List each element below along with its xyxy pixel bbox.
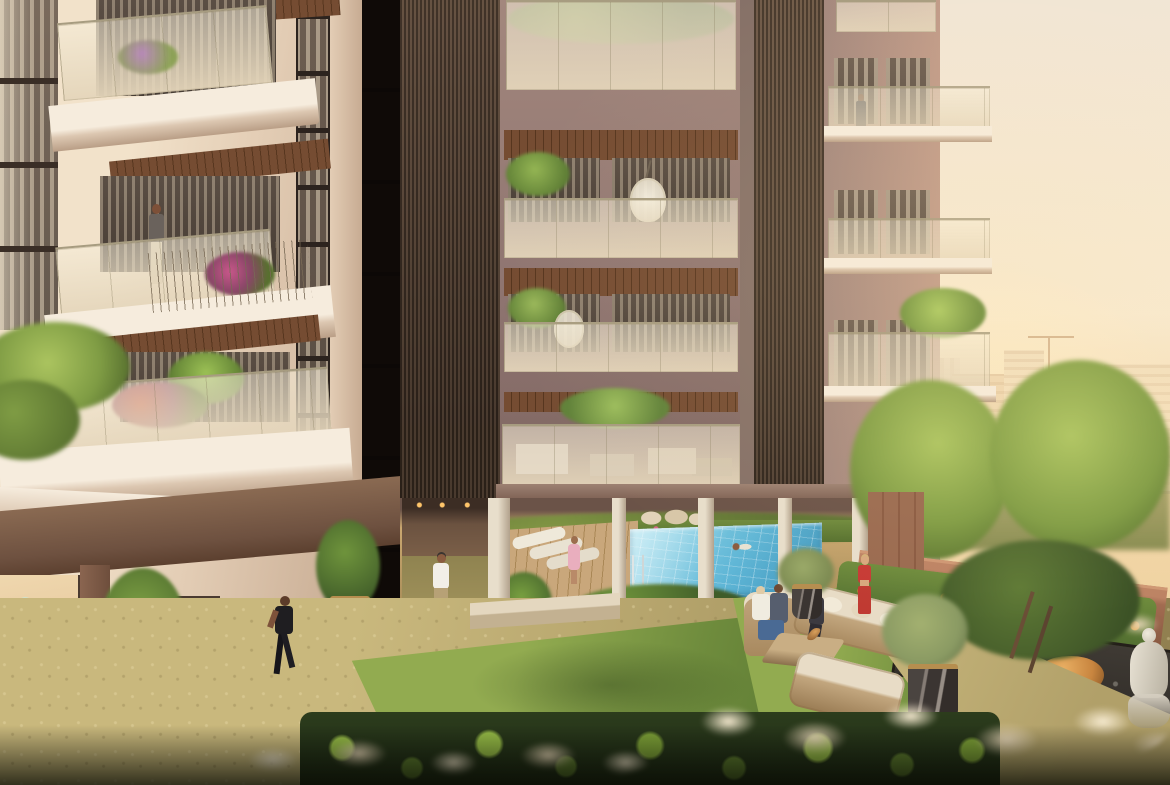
garden-tree-2	[990, 360, 1170, 550]
tower-louver-left-shade	[400, 0, 500, 505]
tower-mid-pier	[740, 0, 754, 500]
buddha-head	[1142, 628, 1156, 643]
woman-pink-head	[571, 536, 578, 544]
jogger-black-leg2	[281, 632, 296, 668]
couple-body-1	[752, 594, 770, 620]
architectural-rendering	[0, 0, 1170, 785]
woman-pink-robe	[566, 536, 582, 586]
olive-tree	[882, 594, 968, 668]
woman-red-outfit	[852, 556, 878, 620]
amenity-glass-band	[502, 424, 740, 486]
rightbay-palm	[900, 288, 986, 338]
floorA-glass-rail	[504, 198, 738, 258]
pool-ladder-icon	[632, 555, 644, 585]
corridor-ceiling-lights	[408, 502, 484, 508]
woman-pink-legs	[571, 570, 577, 584]
bottom-vignette	[0, 725, 1170, 785]
amenity-interior-furniture	[516, 444, 568, 474]
tower-louver-right-shade	[754, 0, 824, 492]
floorB-glass-rail	[504, 322, 738, 372]
balcony1-plant	[118, 40, 178, 74]
floorA-palms	[506, 152, 570, 196]
jogger-white-shirt	[433, 563, 449, 589]
woman-red-pants	[858, 586, 871, 614]
woman-red-head	[861, 556, 869, 565]
woman-pink-body	[568, 544, 580, 570]
left-corner-glazing-frames	[0, 0, 58, 330]
jogger-white-head	[437, 554, 446, 563]
rightbay-top-glass	[836, 0, 936, 32]
tower-central-bay	[500, 0, 740, 500]
couple-head-2	[774, 584, 783, 593]
jogger-black-head	[280, 596, 290, 606]
poolside-wicker-set	[638, 506, 704, 528]
rightbay-slab-1	[824, 126, 992, 142]
swimmer	[732, 541, 752, 552]
left-wing	[0, 0, 402, 660]
couple-body-2	[770, 593, 788, 623]
jogger-black	[264, 596, 304, 696]
balcony-man-head	[152, 204, 161, 214]
buddha-body	[1130, 642, 1168, 698]
rightbay-slab-2	[824, 258, 992, 274]
roof-parapet-glass	[506, 0, 736, 90]
olive-pot-small	[792, 584, 822, 619]
amenity-palms	[560, 388, 670, 428]
